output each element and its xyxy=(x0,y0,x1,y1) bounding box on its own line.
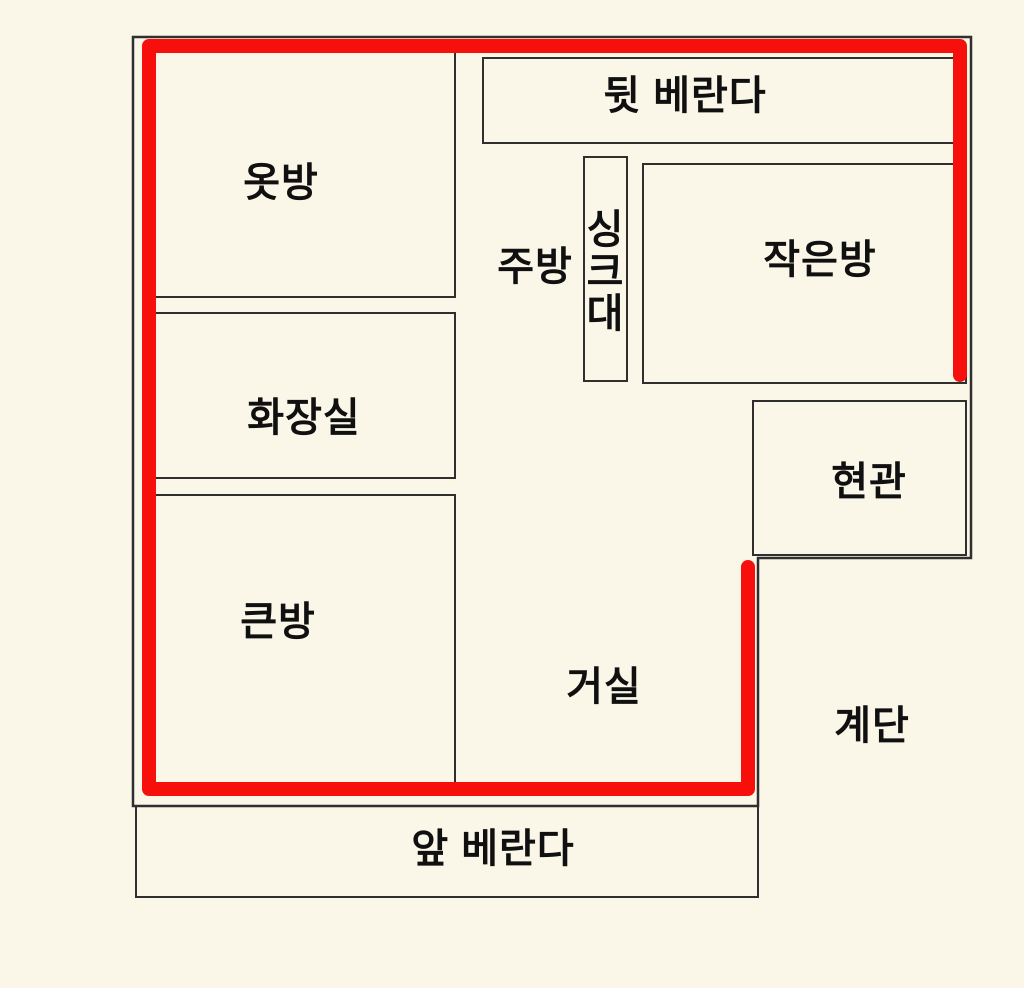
living-room-label: 거실 xyxy=(566,666,642,708)
stairs-label: 계단 xyxy=(834,705,910,747)
front-veranda-label: 앞 베란다 xyxy=(411,828,574,870)
dressing-room-label: 옷방 xyxy=(243,162,319,204)
entrance-label: 현관 xyxy=(831,461,907,503)
kitchen-label: 주방 xyxy=(497,246,573,288)
floorplan-canvas: 옷방 뒷 베란다 주방 싱크대 작은방 화장실 현관 큰방 거실 계단 앞 베란… xyxy=(0,0,1024,988)
big-room-label: 큰방 xyxy=(240,601,316,643)
back-veranda-label: 뒷 베란다 xyxy=(603,75,766,117)
bathroom-label: 화장실 xyxy=(247,397,360,439)
sink-label: 싱크대 xyxy=(583,209,627,335)
small-room-label: 작은방 xyxy=(763,239,876,281)
